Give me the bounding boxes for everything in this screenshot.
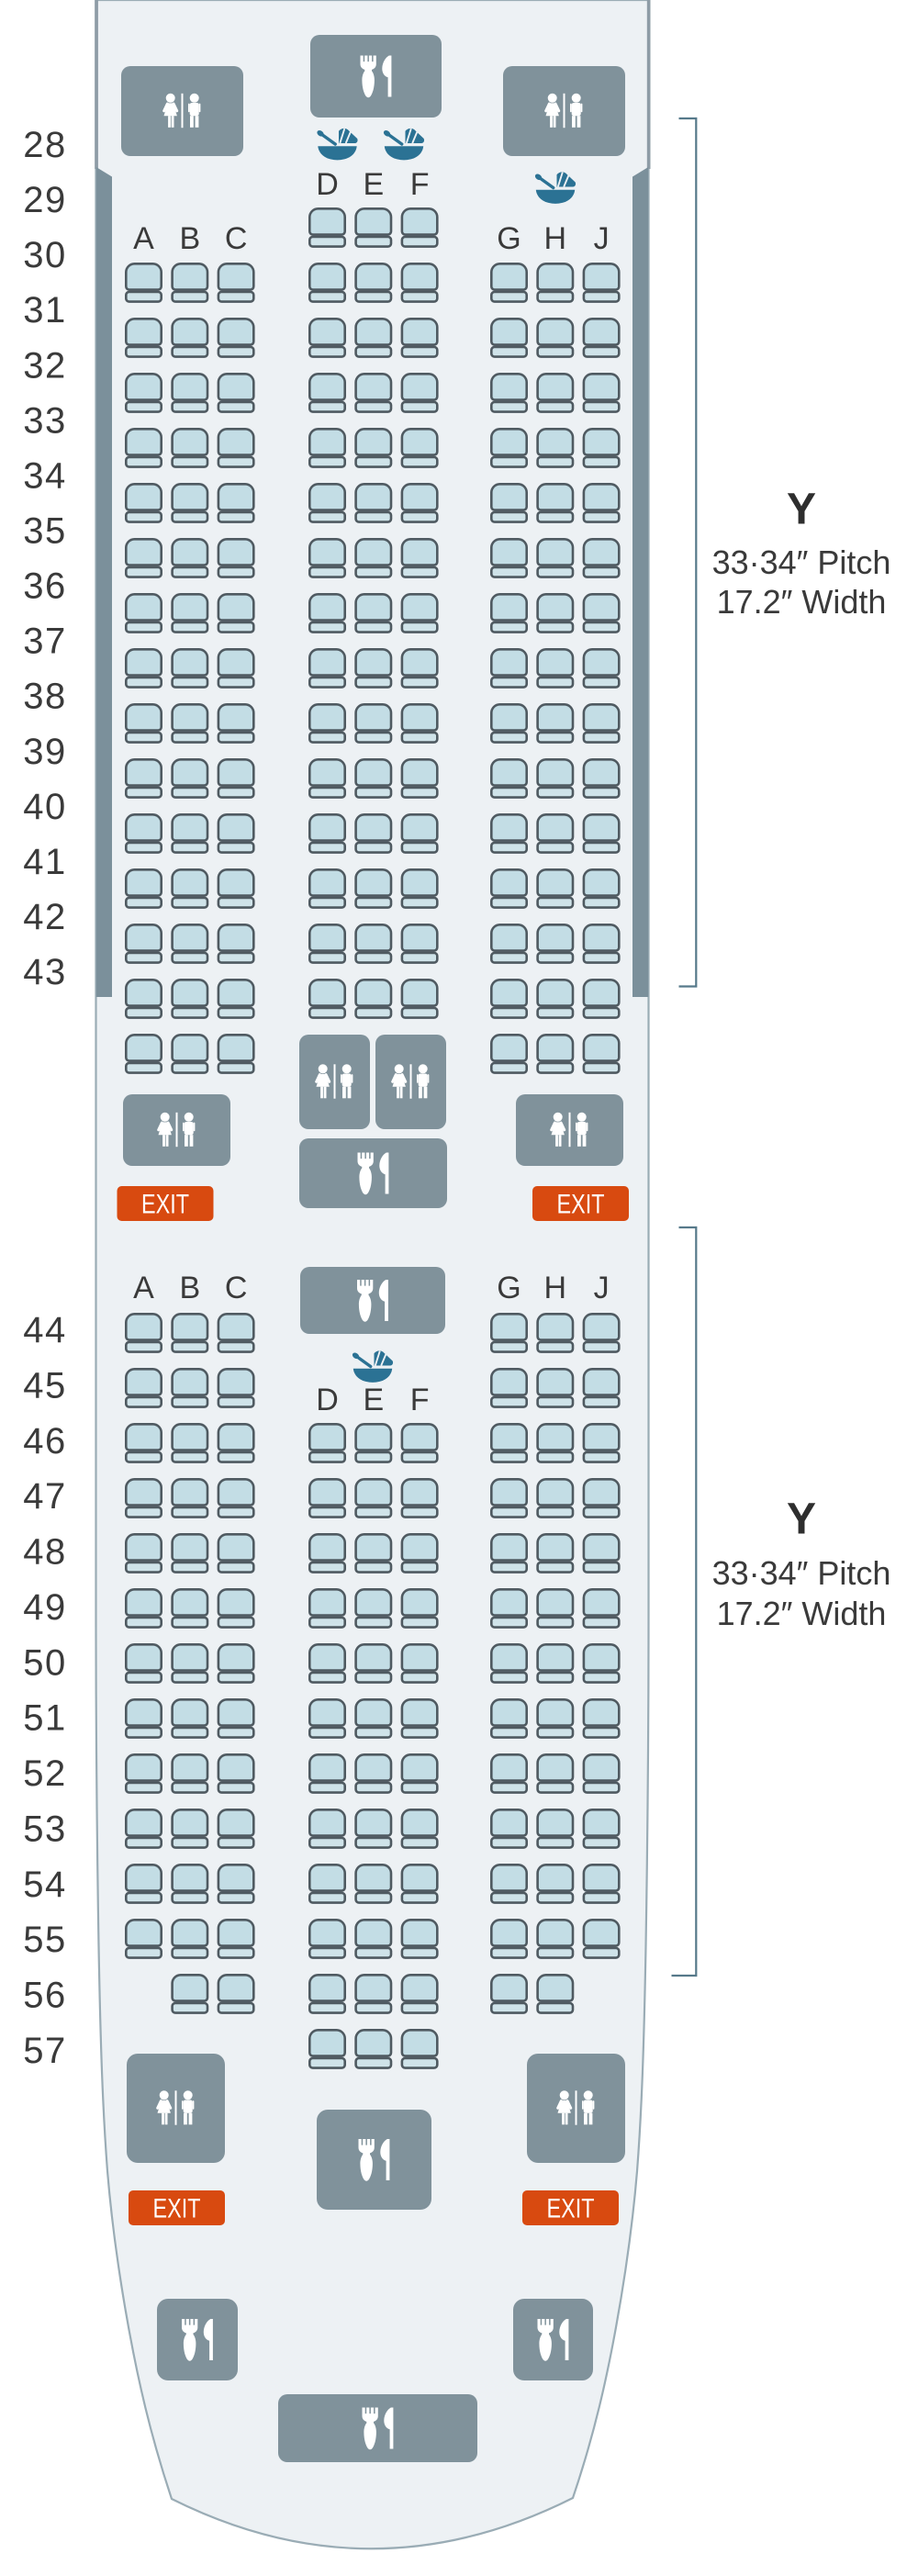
svg-text:42: 42 (23, 897, 67, 937)
svg-text:G: G (497, 221, 521, 256)
svg-text:A: A (133, 1271, 154, 1305)
svg-text:33·34″ Pitch: 33·34″ Pitch (712, 543, 891, 581)
svg-text:EXIT: EXIT (153, 2193, 201, 2223)
svg-text:H: H (544, 1271, 567, 1305)
svg-text:38: 38 (23, 677, 67, 717)
svg-text:33·34″ Pitch: 33·34″ Pitch (712, 1554, 891, 1592)
svg-text:D: D (316, 167, 339, 202)
svg-text:Y: Y (787, 1495, 816, 1543)
svg-text:Y: Y (787, 485, 816, 533)
svg-text:EXIT: EXIT (547, 2193, 595, 2223)
svg-text:G: G (497, 1271, 521, 1305)
svg-text:E: E (363, 167, 384, 202)
svg-text:52: 52 (23, 1753, 67, 1794)
svg-text:E: E (363, 1383, 384, 1417)
svg-text:A: A (133, 221, 154, 256)
svg-text:54: 54 (23, 1865, 67, 1905)
svg-text:28: 28 (23, 125, 67, 165)
svg-text:D: D (316, 1383, 339, 1417)
svg-text:37: 37 (23, 622, 67, 662)
svg-text:40: 40 (23, 787, 67, 827)
svg-text:51: 51 (23, 1698, 67, 1739)
svg-text:32: 32 (23, 345, 67, 386)
svg-text:53: 53 (23, 1809, 67, 1849)
svg-text:47: 47 (23, 1476, 67, 1517)
svg-text:C: C (225, 221, 248, 256)
svg-text:17.2″ Width: 17.2″ Width (717, 1595, 887, 1632)
svg-text:C: C (225, 1271, 248, 1305)
svg-text:36: 36 (23, 566, 67, 607)
svg-text:56: 56 (23, 1976, 67, 2016)
svg-text:F: F (410, 1383, 430, 1417)
svg-text:H: H (544, 221, 567, 256)
svg-text:41: 41 (23, 842, 67, 882)
svg-text:34: 34 (23, 455, 67, 496)
svg-text:55: 55 (23, 1920, 67, 1960)
svg-text:F: F (410, 167, 430, 202)
svg-text:49: 49 (23, 1587, 67, 1628)
svg-text:30: 30 (23, 235, 67, 275)
svg-text:29: 29 (23, 180, 67, 220)
svg-text:33: 33 (23, 400, 67, 441)
svg-text:17.2″ Width: 17.2″ Width (717, 583, 887, 621)
svg-text:J: J (594, 221, 610, 256)
svg-text:48: 48 (23, 1532, 67, 1573)
svg-text:EXIT: EXIT (141, 1189, 189, 1219)
svg-text:44: 44 (23, 1310, 67, 1350)
svg-text:45: 45 (23, 1365, 67, 1406)
svg-text:B: B (179, 1271, 200, 1305)
svg-text:EXIT: EXIT (557, 1189, 605, 1219)
svg-text:43: 43 (23, 952, 67, 992)
svg-text:31: 31 (23, 290, 67, 330)
svg-text:46: 46 (23, 1421, 67, 1462)
svg-text:39: 39 (23, 732, 67, 772)
svg-text:50: 50 (23, 1642, 67, 1683)
svg-text:J: J (594, 1271, 610, 1305)
svg-text:B: B (179, 221, 200, 256)
svg-text:57: 57 (23, 2031, 67, 2071)
svg-text:35: 35 (23, 511, 67, 552)
